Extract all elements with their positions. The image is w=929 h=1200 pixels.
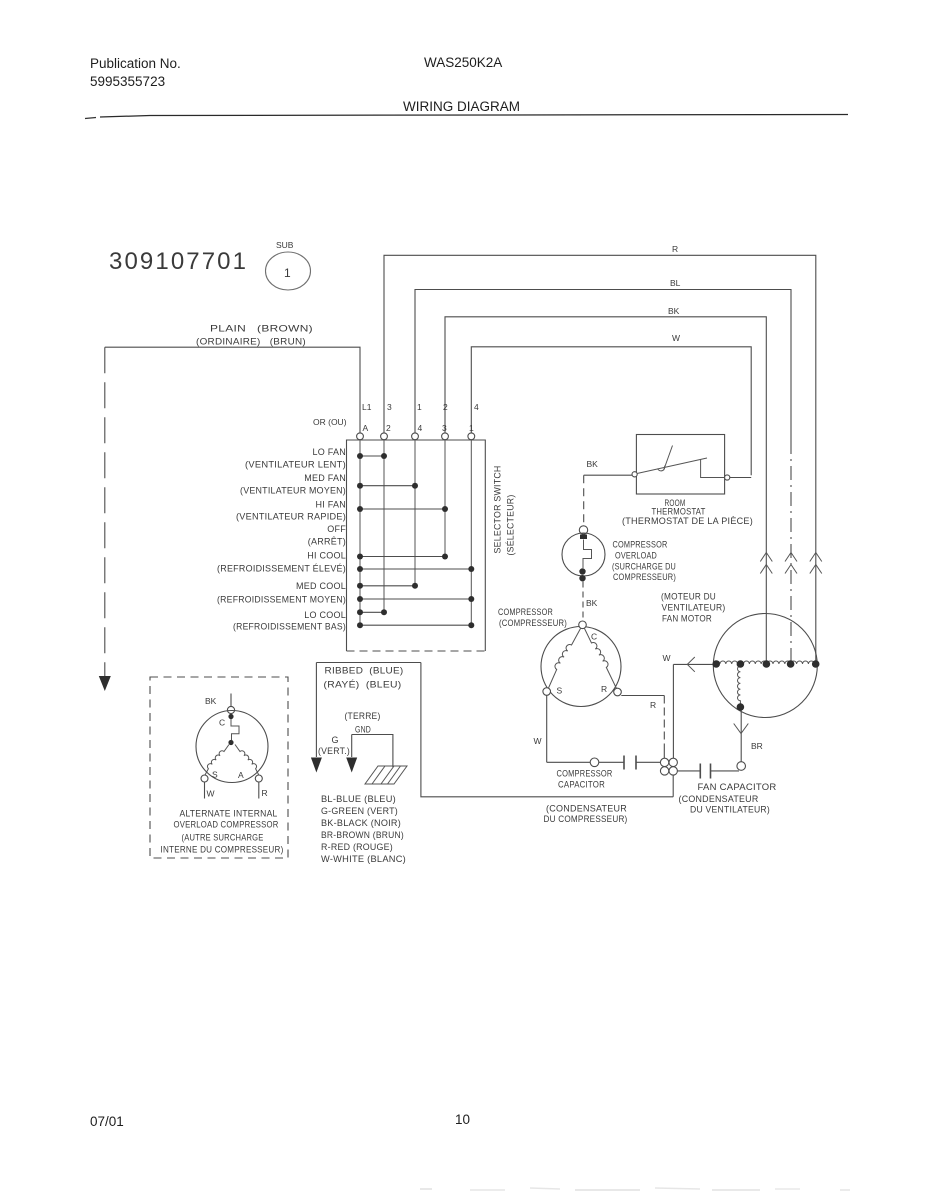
- svg-text:(TERRE): (TERRE): [345, 711, 381, 721]
- svg-text:BK-BLACK (NOIR): BK-BLACK (NOIR): [321, 818, 401, 828]
- svg-text:(REFROIDISSEMENT BAS): (REFROIDISSEMENT BAS): [233, 622, 346, 632]
- svg-text:BK: BK: [205, 696, 217, 706]
- svg-text:C: C: [591, 632, 597, 642]
- svg-text:W: W: [534, 736, 542, 746]
- svg-text:COMPRESSOR: COMPRESSOR: [613, 540, 668, 550]
- svg-text:4: 4: [418, 423, 423, 433]
- svg-text:(REFROIDISSEMENT MOYEN): (REFROIDISSEMENT MOYEN): [217, 595, 346, 605]
- svg-text:WIRING DIAGRAM: WIRING DIAGRAM: [403, 99, 520, 114]
- svg-text:PLAIN (BROWN): PLAIN (BROWN): [210, 324, 313, 334]
- svg-text:CAPACITOR: CAPACITOR: [558, 780, 605, 790]
- svg-text:THERMOSTAT: THERMOSTAT: [652, 507, 706, 517]
- svg-text:G: G: [332, 735, 339, 745]
- svg-text:BK: BK: [586, 598, 598, 608]
- svg-text:Publication No.: Publication No.: [90, 56, 181, 71]
- svg-text:W-WHITE (BLANC): W-WHITE (BLANC): [321, 854, 406, 864]
- svg-text:COMPRESSOR: COMPRESSOR: [498, 607, 553, 617]
- svg-text:(SÉLECTEUR): (SÉLECTEUR): [506, 495, 516, 556]
- svg-text:S: S: [557, 686, 563, 696]
- svg-text:(VENTILATEUR RAPIDE): (VENTILATEUR RAPIDE): [236, 512, 346, 522]
- svg-text:BR: BR: [751, 741, 763, 751]
- svg-text:R: R: [650, 700, 656, 710]
- svg-text:4: 4: [474, 402, 479, 412]
- svg-text:A: A: [363, 423, 369, 433]
- svg-text:R: R: [601, 684, 607, 694]
- svg-text:COMPRESSEUR): COMPRESSEUR): [613, 572, 676, 582]
- svg-text:R-RED (ROUGE): R-RED (ROUGE): [321, 842, 393, 852]
- svg-text:SUB: SUB: [276, 240, 294, 250]
- svg-text:(VENTILATEUR LENT): (VENTILATEUR LENT): [245, 460, 346, 470]
- svg-text:1: 1: [469, 423, 474, 433]
- svg-text:5995355723: 5995355723: [90, 74, 165, 89]
- svg-text:DU COMPRESSEUR): DU COMPRESSEUR): [544, 814, 628, 824]
- svg-text:FAN CAPACITOR: FAN CAPACITOR: [698, 782, 777, 792]
- svg-text:WAS250K2A: WAS250K2A: [424, 55, 502, 70]
- svg-text:HI FAN: HI FAN: [315, 500, 346, 510]
- svg-text:MED FAN: MED FAN: [304, 473, 346, 483]
- svg-text:309107701: 309107701: [109, 248, 246, 275]
- svg-text:LO COOL: LO COOL: [304, 610, 346, 620]
- svg-text:BL: BL: [670, 278, 681, 288]
- svg-text:3: 3: [442, 423, 447, 433]
- svg-text:(MOTEUR DU: (MOTEUR DU: [661, 592, 716, 602]
- svg-text:(SURCHARGE DU: (SURCHARGE DU: [612, 562, 676, 572]
- svg-text:(CONDENSATEUR: (CONDENSATEUR: [546, 804, 627, 814]
- svg-text:HI COOL: HI COOL: [307, 551, 346, 561]
- svg-text:R: R: [672, 244, 678, 254]
- svg-text:COMPRESSOR: COMPRESSOR: [557, 769, 613, 779]
- svg-text:OVERLOAD COMPRESSOR: OVERLOAD COMPRESSOR: [174, 820, 279, 830]
- svg-text:1: 1: [284, 266, 291, 280]
- svg-text:(CONDENSATEUR: (CONDENSATEUR: [679, 794, 759, 804]
- svg-text:W: W: [663, 653, 671, 663]
- svg-text:10: 10: [455, 1112, 470, 1127]
- svg-text:(AUTRE SURCHARGE: (AUTRE SURCHARGE: [182, 833, 264, 843]
- svg-text:2: 2: [386, 423, 391, 433]
- svg-text:C: C: [219, 718, 225, 728]
- svg-text:(VENTILATEUR MOYEN): (VENTILATEUR MOYEN): [240, 486, 346, 496]
- svg-text:(ARRÊT): (ARRÊT): [308, 537, 346, 547]
- svg-text:RIBBED (BLUE): RIBBED (BLUE): [325, 666, 404, 676]
- svg-text:S: S: [212, 770, 218, 780]
- svg-text:(VERT.): (VERT.): [318, 746, 350, 756]
- svg-text:OFF: OFF: [327, 524, 346, 534]
- svg-text:W: W: [672, 333, 680, 343]
- svg-text:MED COOL: MED COOL: [296, 581, 346, 591]
- svg-text:W: W: [207, 789, 215, 799]
- svg-text:07/01: 07/01: [90, 1114, 124, 1129]
- svg-text:FAN MOTOR: FAN MOTOR: [662, 614, 712, 624]
- svg-text:R: R: [262, 788, 268, 798]
- svg-text:SELECTOR SWITCH: SELECTOR SWITCH: [493, 466, 503, 554]
- svg-text:OR (OU): OR (OU): [313, 417, 347, 427]
- svg-text:ALTERNATE INTERNAL: ALTERNATE INTERNAL: [180, 809, 278, 819]
- svg-text:A: A: [238, 770, 244, 780]
- svg-text:3: 3: [387, 402, 392, 412]
- svg-text:(ORDINAIRE) (BRUN): (ORDINAIRE) (BRUN): [196, 337, 306, 347]
- svg-text:2: 2: [443, 402, 448, 412]
- svg-text:(THERMOSTAT DE LA PIÈCE): (THERMOSTAT DE LA PIÈCE): [622, 516, 753, 526]
- svg-text:(RAYÉ) (BLEU): (RAYÉ) (BLEU): [324, 680, 402, 690]
- svg-text:BR-BROWN (BRUN): BR-BROWN (BRUN): [321, 830, 404, 840]
- svg-text:BK: BK: [668, 306, 680, 316]
- svg-text:BL-BLUE (BLEU): BL-BLUE (BLEU): [321, 794, 396, 804]
- svg-text:GND: GND: [355, 725, 371, 735]
- svg-text:L1: L1: [362, 402, 372, 412]
- svg-text:BK: BK: [587, 459, 599, 469]
- svg-text:G-GREEN (VERT): G-GREEN (VERT): [321, 806, 398, 816]
- svg-text:(REFROIDISSEMENT ÉLEVÉ): (REFROIDISSEMENT ÉLEVÉ): [217, 564, 346, 574]
- svg-text:1: 1: [417, 402, 422, 412]
- svg-text:DU VENTILATEUR): DU VENTILATEUR): [690, 805, 770, 815]
- svg-text:(COMPRESSEUR): (COMPRESSEUR): [499, 618, 567, 628]
- svg-text:OVERLOAD: OVERLOAD: [615, 551, 657, 561]
- svg-text:VENTILATEUR): VENTILATEUR): [662, 603, 726, 613]
- svg-text:LO FAN: LO FAN: [312, 447, 346, 457]
- svg-text:INTERNE DU COMPRESSEUR): INTERNE DU COMPRESSEUR): [161, 845, 284, 855]
